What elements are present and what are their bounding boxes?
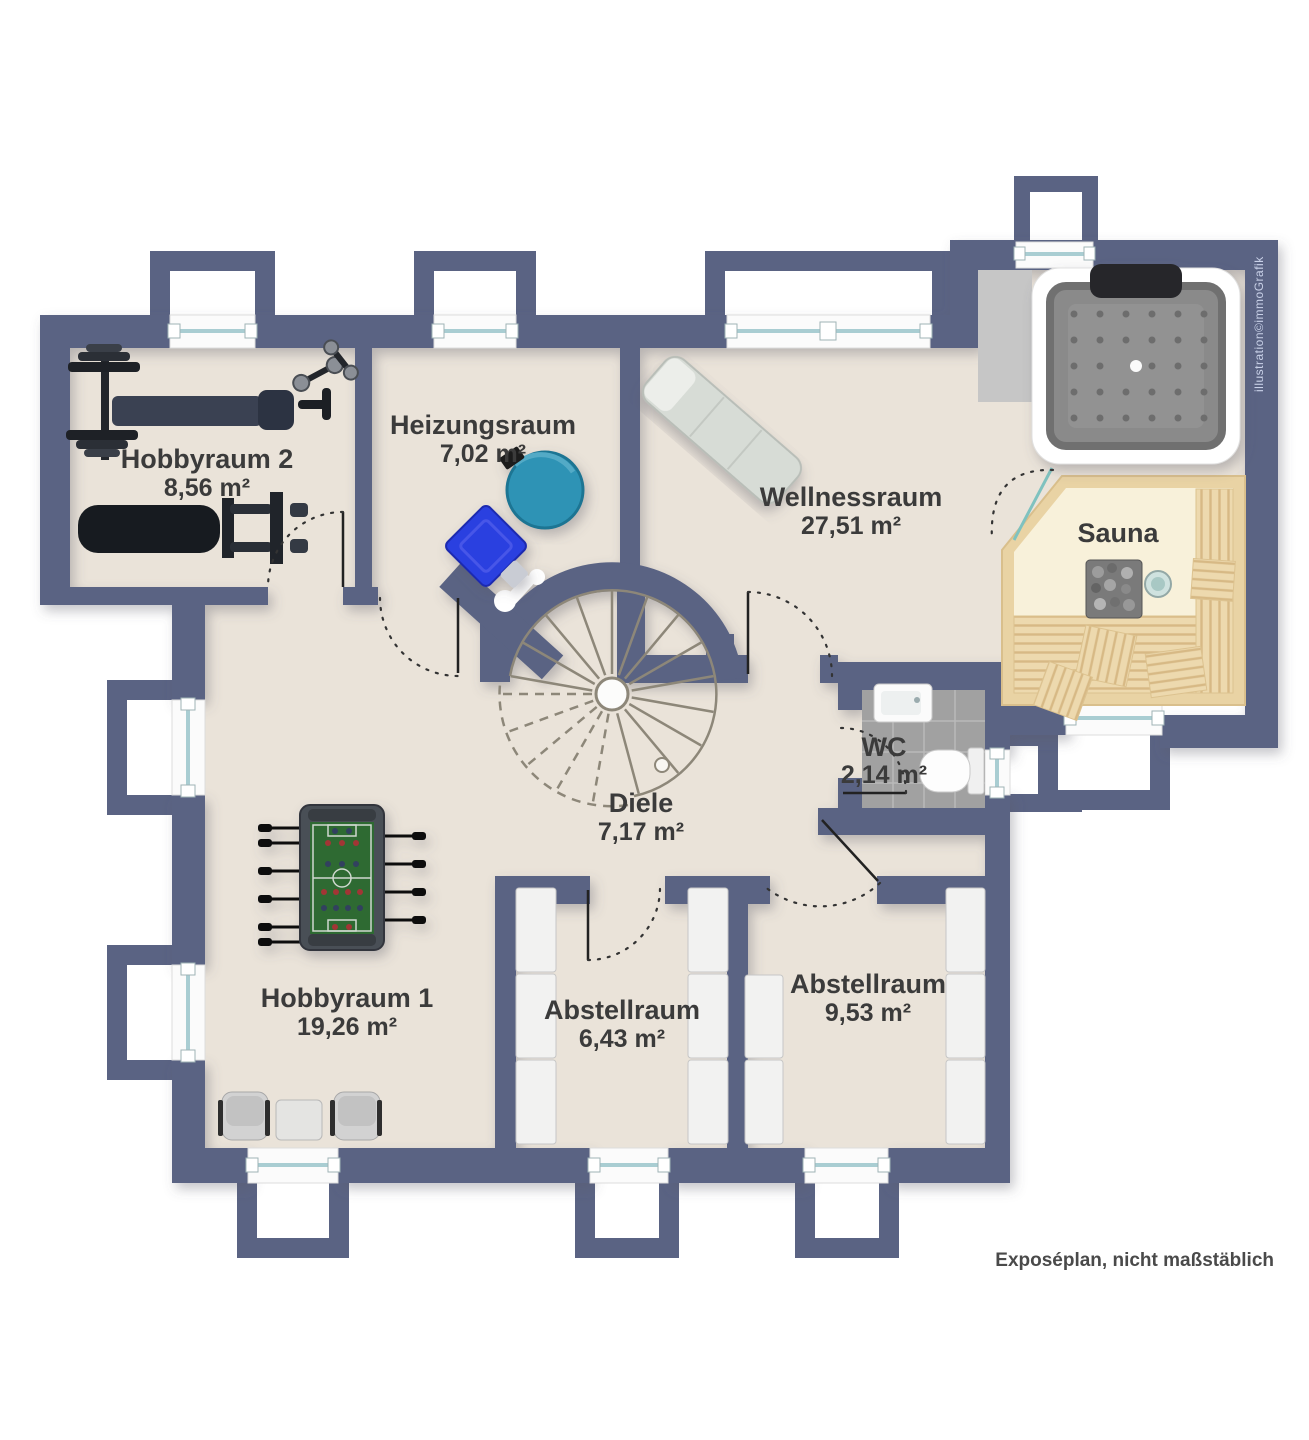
credit-text: illustration©immoGrafik: [1252, 256, 1266, 392]
floorplan-svg: Hobbyraum 2 8,56 m² Heizungsraum 7,02 m²…: [0, 0, 1309, 1440]
light-well: [805, 1183, 889, 1248]
window: [172, 698, 205, 797]
room-label-abstellraum-1: Abstellraum: [544, 995, 700, 1025]
chair: [218, 1092, 270, 1140]
light-well: [1048, 735, 1160, 800]
sauna-heater: [1086, 560, 1142, 618]
room-area-diele: 7,17 m²: [598, 818, 684, 846]
sauna-bucket: [1145, 571, 1171, 597]
light-well: [715, 261, 942, 318]
room-area-heizungsraum: 7,02 m²: [440, 440, 526, 468]
wc-toilet: [920, 748, 984, 794]
room-area-hobbyraum-1: 19,26 m²: [297, 1013, 397, 1041]
room-label-hobbyraum-2: Hobbyraum 2: [121, 444, 294, 474]
room-area-hobbyraum-2: 8,56 m²: [164, 474, 250, 502]
room-area-abstellraum-1: 6,43 m²: [579, 1025, 665, 1053]
hot-tub-drain: [1130, 360, 1142, 372]
window: [725, 315, 932, 348]
window: [1014, 242, 1095, 268]
disclaimer-text: Exposéplan, nicht maßstäblich: [995, 1250, 1274, 1271]
light-well: [117, 955, 172, 1070]
side-table: [276, 1100, 322, 1140]
stair-center-post: [596, 678, 628, 710]
hot-tub-headrest: [1090, 264, 1182, 298]
room-area-wellnessraum: 27,51 m²: [801, 512, 901, 540]
wc-sink: [874, 684, 932, 722]
window: [246, 1148, 340, 1183]
light-well: [160, 261, 265, 318]
room-label-hobbyraum-1: Hobbyraum 1: [261, 983, 434, 1013]
floorplan-page: Hobbyraum 2 8,56 m² Heizungsraum 7,02 m²…: [0, 0, 1309, 1440]
room-label-sauna: Sauna: [1077, 518, 1159, 548]
light-well: [585, 1183, 669, 1248]
platform: [978, 270, 1032, 402]
room-area-wc: 2,14 m²: [841, 761, 927, 789]
window: [172, 963, 205, 1062]
room-area-abstellraum-2: 9,53 m²: [825, 999, 911, 1027]
window: [432, 315, 518, 348]
window: [168, 315, 257, 348]
light-well: [424, 261, 526, 318]
room-label-wc: WC: [862, 732, 907, 762]
sauna-bench-patch: [1191, 559, 1236, 602]
window: [985, 748, 1010, 798]
room-label-abstellraum-2: Abstellraum: [790, 969, 946, 999]
room-label-heizungsraum: Heizungsraum: [390, 410, 576, 440]
window: [588, 1148, 670, 1183]
light-well: [247, 1183, 339, 1248]
room-label-wellnessraum: Wellnessraum: [760, 482, 943, 512]
room-label-diele: Diele: [609, 788, 674, 818]
hot-tub: [1032, 264, 1240, 464]
chair: [330, 1092, 382, 1140]
light-well: [117, 690, 172, 805]
window: [803, 1148, 890, 1183]
sauna-bench-patch: [1145, 646, 1207, 697]
